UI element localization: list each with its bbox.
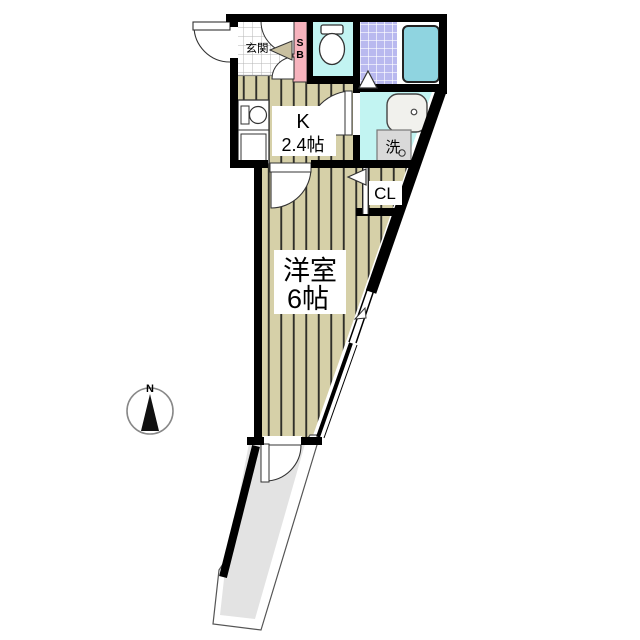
- room-size: 6帖: [287, 284, 329, 314]
- closet-label: CL: [369, 181, 402, 205]
- compass-north-label: N: [146, 383, 154, 395]
- kitchen-unit-icon: [238, 100, 269, 164]
- wall-left-room: [254, 162, 262, 445]
- wall-top: [226, 14, 447, 22]
- washer-label: 洗: [385, 139, 400, 156]
- washbasin-icon: [387, 94, 427, 132]
- western-room-label: 洋室 6帖: [274, 250, 346, 314]
- floor-plan-page: 洗: [0, 0, 640, 640]
- entry-door-leaf: [193, 22, 230, 30]
- toilet-icon: [320, 25, 345, 65]
- genkan-label: 玄関: [246, 41, 269, 55]
- bathtub: [403, 26, 439, 82]
- kitchen-size: 2.4帖: [281, 135, 324, 155]
- floor-plan-drawing: 洗: [0, 0, 640, 640]
- washing-machine-icon: 洗: [377, 130, 411, 161]
- wall-right: [439, 14, 447, 94]
- kitchen-label: K 2.4帖: [272, 106, 336, 156]
- room-name: 洋室: [283, 256, 337, 286]
- shoebox-label-s: S: [296, 37, 303, 49]
- kitchen-letter: K: [296, 111, 310, 133]
- shoebox-label-b: B: [296, 49, 304, 61]
- wall-left-upper: [230, 58, 238, 168]
- closet-label-text: CL: [374, 184, 396, 203]
